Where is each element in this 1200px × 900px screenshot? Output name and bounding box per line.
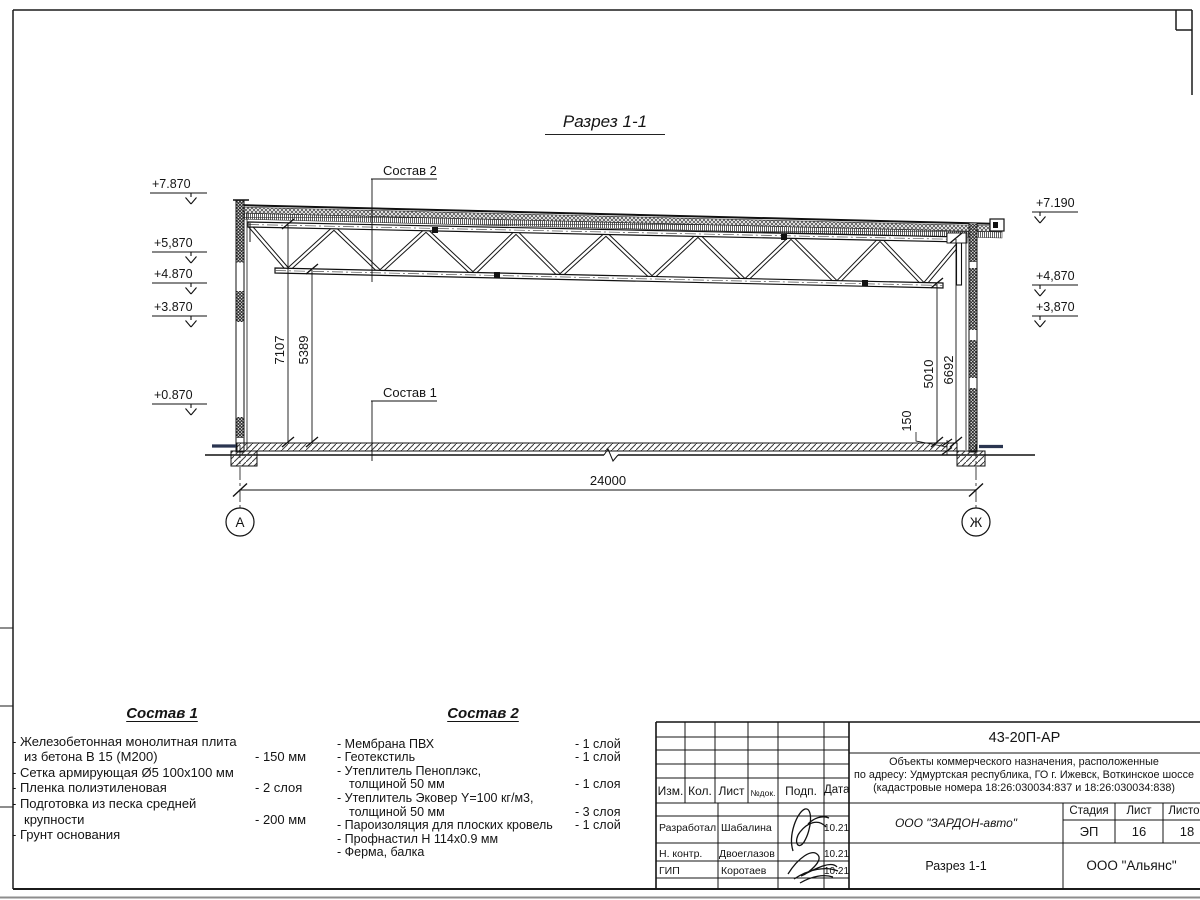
list-item: - Пароизоляция для плоских кровель- 1 сл… — [337, 819, 629, 833]
composition-list-2: Состав 2 - Мембрана ПВХ- 1 слой - Геотек… — [337, 706, 629, 860]
floor-slab — [237, 443, 957, 451]
composition-1-heading: Состав 1 — [12, 706, 312, 722]
role-gip: ГИП — [659, 865, 680, 877]
stage-label: Стадия — [1063, 805, 1115, 817]
col-kol: Кол. — [685, 784, 715, 798]
dim-span-value: 24000 — [590, 473, 626, 488]
list-item: - Профнастил Н 114х0.9 мм — [337, 833, 629, 847]
list-item: - Мембрана ПВХ- 1 слой — [337, 738, 629, 752]
col-ndok: №док. — [748, 788, 778, 798]
col-data: Дата — [824, 784, 849, 796]
axis-letter-right: Ж — [970, 515, 983, 530]
stage-value: ЭП — [1063, 824, 1115, 839]
elev-right-2: +3,870 — [1036, 300, 1075, 314]
role-control: Н. контр. — [659, 848, 702, 860]
dim-left-heights: 7107 5389 — [272, 219, 318, 447]
composition-2-heading: Состав 2 — [337, 706, 629, 722]
label-sostav2: Состав 2 — [383, 163, 437, 178]
role-developer: Разработал — [659, 822, 716, 834]
project-description: Объекты коммерческого назначения, распол… — [851, 756, 1197, 796]
list-item: - Пленка полиэтиленовая- 2 слоя — [12, 780, 312, 796]
list-item: - Утеплитель Эковер Y=100 кг/м3, — [337, 792, 629, 806]
list-item: - Сетка армирующая Ø5 100х100 мм — [12, 765, 312, 781]
col-list: Лист — [715, 784, 748, 798]
col-izm: Изм. — [656, 784, 685, 798]
dim-h1-value: 7107 — [272, 336, 287, 365]
elev-left-2: +4.870 — [154, 267, 193, 281]
col-podp: Подп. — [778, 784, 824, 798]
sheet-label: Лист — [1115, 805, 1163, 817]
date-developer: 10.21 — [824, 823, 849, 834]
list-item: толщиной 50 мм- 1 слоя — [337, 778, 629, 792]
name-control: Двоеглазов — [719, 848, 775, 860]
elev-left-4: +0.870 — [154, 388, 193, 402]
list-item: - Подготовка из песка средней — [12, 796, 312, 812]
sheets-total: 18 — [1163, 824, 1200, 839]
elevation-marks-left: +7.870 +5,870 +4.870 +3.870 +0.870 — [150, 177, 207, 415]
sheet-number: 16 — [1115, 824, 1163, 839]
list-item: - Железобетонная монолитная плита — [12, 734, 312, 750]
org-name: ООО "ЗАРДОН-авто" — [852, 816, 1060, 830]
dim-span: 24000 — [233, 473, 983, 497]
sheets-label: Листов — [1163, 805, 1200, 817]
list-item: толщиной 50 мм- 3 слоя — [337, 806, 629, 820]
footing-left — [231, 451, 257, 466]
name-gip: Коротаев — [721, 865, 766, 877]
company-name: ООО "Альянс" — [1063, 858, 1200, 873]
elevation-marks-right: +7.190 +4,870 +3,870 — [1032, 196, 1078, 327]
date-gip: 10.21 — [824, 866, 849, 877]
elev-right-1: +4,870 — [1036, 269, 1075, 283]
dim-h2-value: 5389 — [296, 336, 311, 365]
label-sostav1: Состав 1 — [383, 385, 437, 400]
elev-left-1: +5,870 — [154, 236, 193, 250]
elev-left-3: +3.870 — [154, 300, 193, 314]
list-item: - Геотекстиль- 1 слой — [337, 751, 629, 765]
wall-right — [966, 223, 977, 452]
drawing-title: Разрез 1-1 — [545, 112, 665, 135]
wall-left — [233, 200, 249, 452]
dim-h4-value: 6692 — [941, 356, 956, 385]
list-item: крупности- 200 мм — [12, 812, 312, 828]
list-item: - Грунт основания — [12, 827, 312, 843]
date-control: 10.21 — [824, 849, 849, 860]
list-item: - Утеплитель Пеноплэкс, — [337, 765, 629, 779]
composition-list-1: Состав 1 - Железобетонная монолитная пли… — [12, 706, 312, 843]
list-item: - Ферма, балка — [337, 846, 629, 860]
dim-h3-value: 5010 — [921, 360, 936, 389]
elev-left-0: +7.870 — [152, 177, 191, 191]
elev-right-0: +7.190 — [1036, 196, 1075, 210]
name-developer: Шабалина — [721, 822, 772, 834]
doc-number: 43-20П-АР — [852, 730, 1197, 746]
axis-letter-left: А — [235, 515, 244, 530]
list-item: из бетона В 15 (М200)- 150 мм — [12, 749, 312, 765]
dim-slab-value: 150 — [900, 411, 914, 432]
drawing-name: Разрез 1-1 — [852, 859, 1060, 873]
footing-right — [957, 451, 985, 466]
